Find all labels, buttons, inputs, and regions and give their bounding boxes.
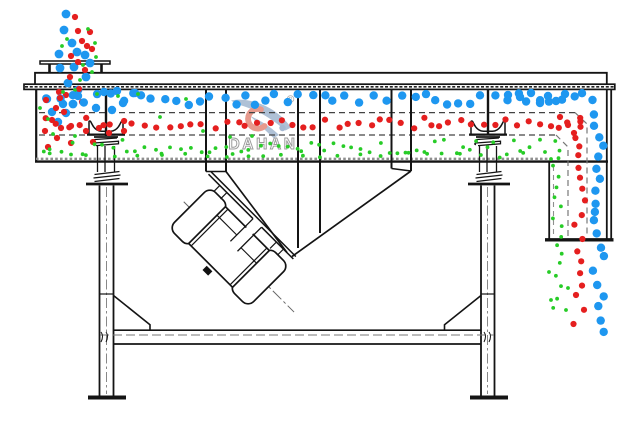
svg-text:DAHAN: DAHAN bbox=[229, 136, 298, 153]
